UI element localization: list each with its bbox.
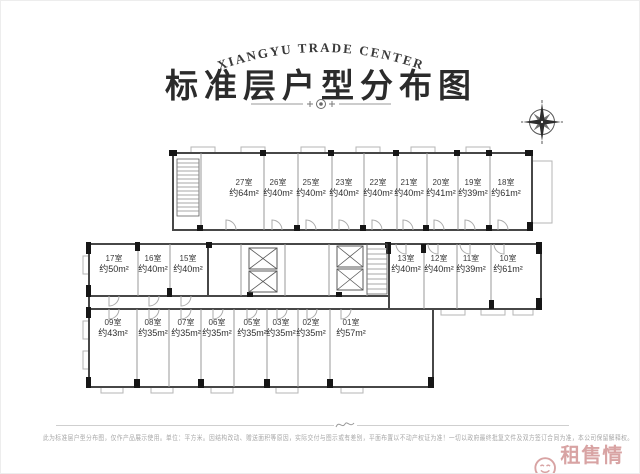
- room-label-03: 03室约35m²: [266, 317, 296, 339]
- room-area: 约61m²: [493, 264, 523, 275]
- room-number: 22室: [363, 177, 393, 188]
- room-label-09: 09室约43m²: [98, 317, 128, 339]
- room-area: 约35m²: [202, 328, 232, 339]
- room-label-06: 06室约35m²: [202, 317, 232, 339]
- footer-divider-left: [56, 425, 334, 426]
- room-label-01: 01室约57m²: [336, 317, 366, 339]
- room-label-13: 13室约40m²: [391, 253, 421, 275]
- room-area: 约50m²: [99, 264, 129, 275]
- room-number: 15室: [173, 253, 203, 264]
- room-area: 约40m²: [263, 188, 293, 199]
- room-number: 13室: [391, 253, 421, 264]
- room-label-26: 26室约40m²: [263, 177, 293, 199]
- room-area: 约61m²: [491, 188, 521, 199]
- room-area: 约43m²: [98, 328, 128, 339]
- room-area: 约35m²: [237, 328, 267, 339]
- room-label-08: 08室约35m²: [138, 317, 168, 339]
- page: XIANGYU TRADE CENTER 标准层户型分布图: [0, 0, 640, 474]
- room-area: 约35m²: [171, 328, 201, 339]
- room-number: 03室: [266, 317, 296, 328]
- room-area: 约40m²: [329, 188, 359, 199]
- room-number: 05室: [237, 317, 267, 328]
- room-label-23: 23室约40m²: [329, 177, 359, 199]
- room-area: 约40m²: [173, 264, 203, 275]
- room-number: 09室: [98, 317, 128, 328]
- room-area: 约35m²: [138, 328, 168, 339]
- room-number: 23室: [329, 177, 359, 188]
- room-label-11: 11室约39m²: [456, 253, 486, 275]
- room-area: 约35m²: [296, 328, 326, 339]
- room-area: 约40m²: [394, 188, 424, 199]
- room-label-05: 05室约35m²: [237, 317, 267, 339]
- disclaimer: 此为标准层户型分布图，仅作产品展示使用。单位：平方米。因结构改动、赠送面积等原因…: [43, 433, 499, 443]
- room-area: 约40m²: [424, 264, 454, 275]
- room-number: 11室: [456, 253, 486, 264]
- room-number: 12室: [424, 253, 454, 264]
- room-number: 21室: [394, 177, 424, 188]
- room-label-12: 12室约40m²: [424, 253, 454, 275]
- room-number: 20室: [426, 177, 456, 188]
- room-number: 19室: [458, 177, 488, 188]
- watermark-text: 租售情报: [560, 439, 639, 474]
- room-label-25: 25室约40m²: [296, 177, 326, 199]
- room-label-20: 20室约41m²: [426, 177, 456, 199]
- room-number: 02室: [296, 317, 326, 328]
- room-area: 约40m²: [363, 188, 393, 199]
- watermark: 租售情报: [533, 439, 639, 474]
- room-label-07: 07室约35m²: [171, 317, 201, 339]
- room-label-02: 02室约35m²: [296, 317, 326, 339]
- room-label-15: 15室约40m²: [173, 253, 203, 275]
- room-number: 08室: [138, 317, 168, 328]
- room-label-27: 27室约64m²: [229, 177, 259, 199]
- room-area: 约64m²: [229, 188, 259, 199]
- elevator-icons: [249, 246, 363, 292]
- room-number: 16室: [138, 253, 168, 264]
- room-area: 约40m²: [391, 264, 421, 275]
- floor-plan: [1, 1, 640, 474]
- room-area: 约41m²: [426, 188, 456, 199]
- room-number: 27室: [229, 177, 259, 188]
- room-area: 约35m²: [266, 328, 296, 339]
- room-area: 约40m²: [296, 188, 326, 199]
- room-area: 约39m²: [456, 264, 486, 275]
- room-number: 07室: [171, 317, 201, 328]
- room-label-22: 22室约40m²: [363, 177, 393, 199]
- room-number: 25室: [296, 177, 326, 188]
- room-number: 26室: [263, 177, 293, 188]
- room-label-21: 21室约40m²: [394, 177, 424, 199]
- room-label-17: 17室约50m²: [99, 253, 129, 275]
- room-area: 约40m²: [138, 264, 168, 275]
- room-number: 10室: [493, 253, 523, 264]
- footer-flourish-icon: [335, 419, 355, 431]
- room-label-16: 16室约40m²: [138, 253, 168, 275]
- room-number: 18室: [491, 177, 521, 188]
- room-area: 约39m²: [458, 188, 488, 199]
- room-number: 06室: [202, 317, 232, 328]
- room-area: 约57m²: [336, 328, 366, 339]
- room-label-18: 18室约61m²: [491, 177, 521, 199]
- room-label-10: 10室约61m²: [493, 253, 523, 275]
- room-label-19: 19室约39m²: [458, 177, 488, 199]
- watermark-smiley-icon: [533, 455, 557, 474]
- room-number: 17室: [99, 253, 129, 264]
- room-number: 01室: [336, 317, 366, 328]
- footer-divider-right: [357, 425, 569, 426]
